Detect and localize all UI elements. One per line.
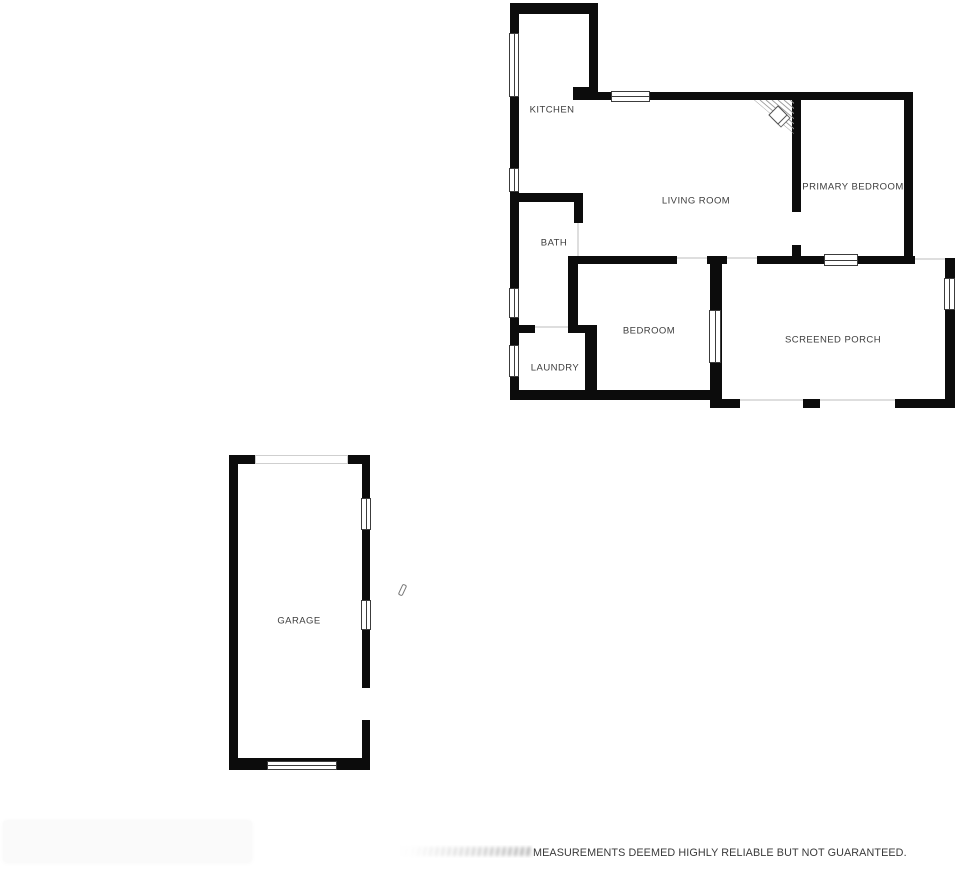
wall-segment — [803, 399, 820, 408]
wall-segment — [362, 630, 370, 688]
room-label-garage: GARAGE — [277, 616, 320, 627]
blurred-logo-box — [3, 820, 252, 862]
room-label-screened-porch: SCREENED PORCH — [785, 335, 881, 346]
wall-segment — [510, 192, 519, 288]
screen-opening-line — [740, 399, 803, 401]
wall-segment — [362, 530, 370, 600]
wall-segment — [510, 3, 598, 14]
garage-door — [267, 761, 337, 770]
door-opening-line — [915, 258, 945, 260]
room-label-bath: BATH — [541, 238, 567, 249]
wall-segment — [710, 399, 740, 408]
screen-opening-line — [820, 399, 895, 401]
blurred-watermark — [400, 845, 533, 858]
wall-segment — [510, 325, 535, 333]
window — [709, 310, 721, 363]
door-opening-line — [677, 257, 707, 259]
blurred-watermark-fade — [400, 845, 533, 858]
room-label-primary-bedroom: PRIMARY BEDROOM — [802, 182, 903, 193]
window — [824, 254, 858, 266]
floor-plan-canvas: KITCHEN LIVING ROOM PRIMARY BEDROOM BATH… — [0, 0, 960, 872]
wall-segment — [510, 193, 583, 202]
room-label-living-room: LIVING ROOM — [662, 196, 730, 207]
window — [509, 345, 519, 377]
window — [611, 91, 650, 102]
wall-segment — [510, 3, 519, 33]
wall-segment — [568, 325, 597, 333]
measurements-disclaimer: MEASUREMENTS DEEMED HIGHLY RELIABLE BUT … — [533, 847, 907, 859]
window — [509, 168, 519, 192]
window — [509, 33, 519, 97]
wall-segment — [574, 193, 583, 223]
room-label-kitchen: KITCHEN — [530, 105, 575, 116]
fireplace-hatch — [752, 100, 794, 134]
door-opening-line — [727, 257, 757, 259]
window — [944, 278, 955, 310]
wall-segment — [229, 455, 255, 464]
wall-segment — [589, 3, 598, 100]
window — [361, 600, 371, 630]
wall-segment — [904, 92, 913, 263]
garage-opening — [255, 455, 348, 464]
window — [361, 498, 371, 530]
wall-segment — [362, 455, 370, 498]
door-opening-line — [577, 223, 579, 256]
wall-segment — [568, 256, 578, 333]
window — [509, 288, 519, 318]
room-label-laundry: LAUNDRY — [531, 363, 579, 374]
wall-segment — [568, 256, 677, 264]
exterior-unit — [398, 584, 408, 597]
door-opening-line — [535, 326, 568, 328]
room-label-bedroom: BEDROOM — [623, 326, 675, 337]
wall-segment — [229, 455, 238, 770]
wall-segment — [510, 97, 519, 168]
wall-segment — [895, 399, 955, 408]
wall-segment — [510, 390, 722, 400]
